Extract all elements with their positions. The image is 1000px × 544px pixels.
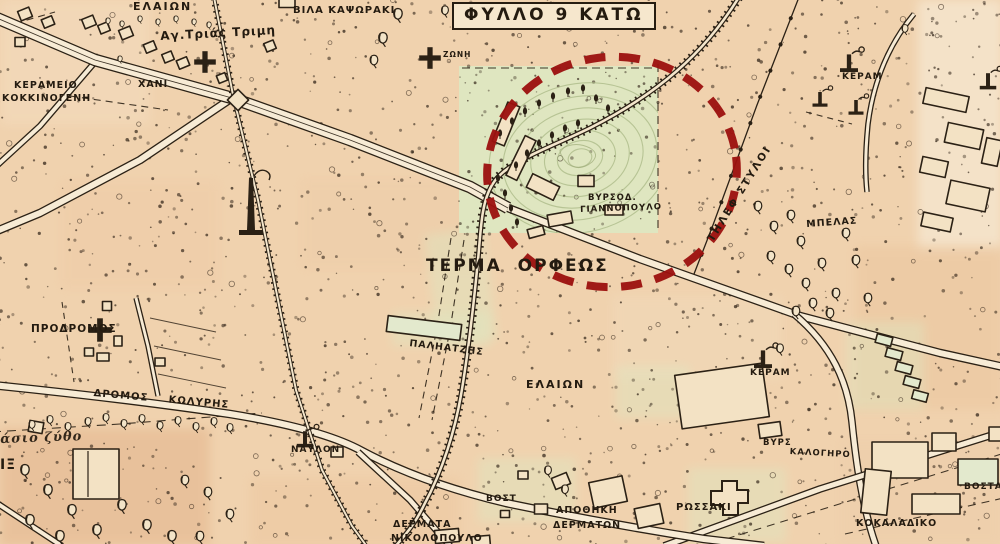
map-label-kerameio: ΚΕΡΑΜΕΙΟ: [14, 81, 78, 91]
map-label-fix-partial: ΙΞ: [0, 458, 16, 472]
map-label-vostan: ΒΟΣΤΑΝ: [964, 483, 1000, 492]
map-label-dermaton: ΔΕΡΜΑΤΩΝ: [553, 521, 621, 531]
map-label-nikolopoulo: ΝΙΚΟΛΟΠΟΥΛΟ: [391, 534, 483, 544]
map-label-terma-orfeos: ΤΕΡΜΑ ΟΡΦΕΩΣ: [426, 258, 609, 275]
map-sheet-title-text: ΦΥΛΛΟ 9 ΚΑΤΩ: [464, 5, 644, 25]
map-label-rossaki: ΡΩΣΣΑΚΙ: [676, 503, 732, 513]
map-label-kokkinogeni: ΚΟΚΚΙΝΟΓΕΝΗ: [2, 94, 91, 104]
map-label-keram-mid: ΚΕΡΑΜ: [750, 369, 791, 378]
city-map: ΦΥΛΛΟ 9 ΚΑΤΩ ΕΛΑΙΩΝ Αγ.Τριάς Τριμη ΚΕΡΑΜ…: [0, 0, 1000, 544]
map-label-byrsod: ΒΥΡΣΟΔ.: [588, 194, 637, 203]
map-label-vila-kapsoraki: ΒΙΛΑ ΚΑΨΩΡΑΚΙ: [293, 6, 395, 16]
map-label-zoni: ΖΩΝΗ: [443, 51, 471, 59]
map-label-brewery-partial: άσιο ζύθο: [0, 430, 83, 446]
map-label-prodromos: ΠΡΟΔΡΟΜΟΣ: [31, 324, 117, 335]
map-label-kokaladiko: ΚΟΚΑΛΑΔΙΚΟ: [856, 519, 937, 529]
map-sheet-title: ΦΥΛΛΟ 9 ΚΑΤΩ: [452, 2, 656, 30]
map-label-apothiki: ΑΠΟΘΗΚΗ: [556, 506, 618, 516]
map-label-elaionas-north: ΕΛΑΙΩΝ: [133, 1, 192, 12]
map-label-keram-ne: ΚΕΡΑΜ: [842, 73, 883, 82]
map-label-byrs: ΒΥΡΣ: [763, 439, 792, 448]
map-label-elaionas-center: ΕΛΑΙΩΝ: [526, 379, 585, 390]
map-label-dermata: ΔΕΡΜΑΤΑ: [393, 520, 451, 530]
map-label-naylon: ΝΑΥΛΟΝ: [291, 446, 340, 455]
map-label-vost: ΒΟΣΤ: [486, 495, 517, 504]
map-label-xani: ΧΑΝΙ: [138, 80, 168, 90]
